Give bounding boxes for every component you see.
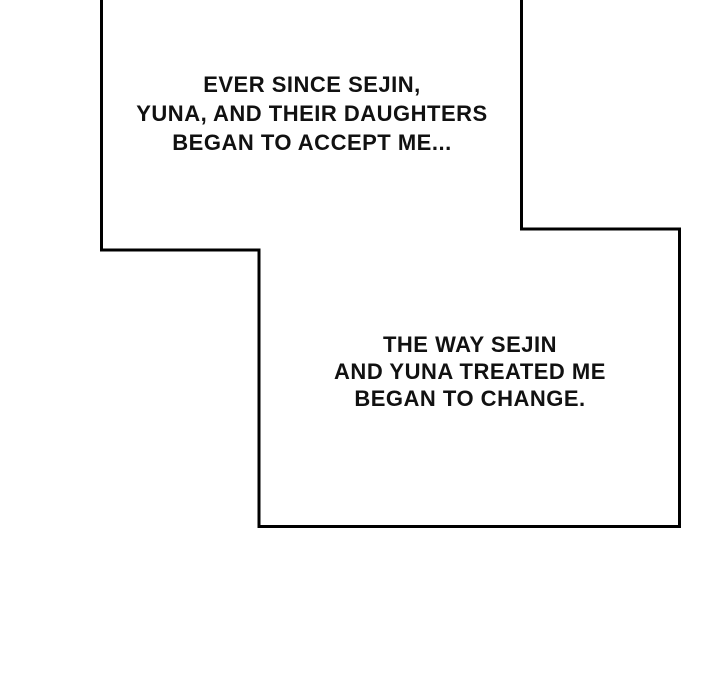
comic-page: EVER SINCE SEJIN, YUNA, AND THEIR DAUGHT… — [0, 0, 720, 700]
narration-line: THE WAY SEJIN — [260, 331, 680, 358]
narration-line: AND YUNA TREATED ME — [260, 358, 680, 385]
narration-box-bottom: THE WAY SEJIN AND YUNA TREATED ME BEGAN … — [260, 331, 680, 412]
narration-line: BEGAN TO CHANGE. — [260, 385, 680, 412]
narration-line: EVER SINCE SEJIN, — [102, 70, 522, 99]
narration-line: YUNA, AND THEIR DAUGHTERS — [102, 99, 522, 128]
narration-line: BEGAN TO ACCEPT ME... — [102, 128, 522, 157]
narration-box-top: EVER SINCE SEJIN, YUNA, AND THEIR DAUGHT… — [102, 70, 522, 157]
